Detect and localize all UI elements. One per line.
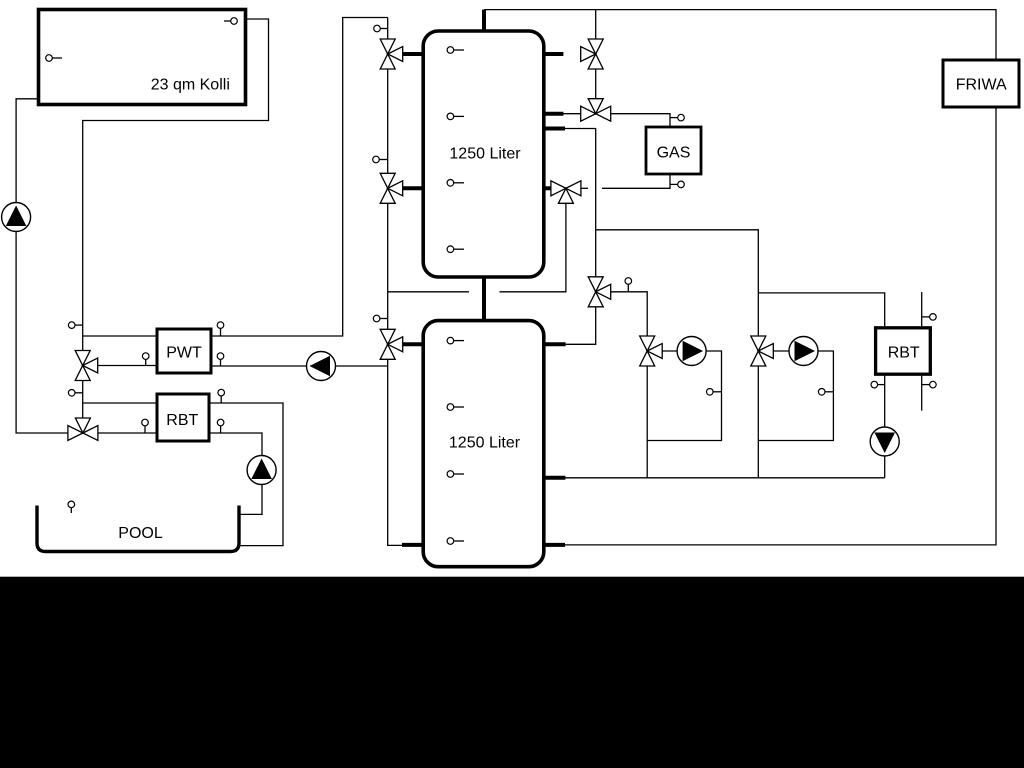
svg-text:RBT: RBT (166, 412, 198, 429)
svg-text:GAS: GAS (657, 145, 691, 162)
svg-text:POOL: POOL (118, 525, 163, 542)
svg-text:FRIWA: FRIWA (956, 76, 1007, 93)
svg-text:23 qm Kolli: 23 qm Kolli (151, 77, 230, 94)
svg-text:PWT: PWT (166, 345, 202, 362)
svg-text:1250 Liter: 1250 Liter (449, 434, 521, 451)
svg-text:1250 Liter: 1250 Liter (449, 145, 521, 162)
svg-text:RBT: RBT (888, 345, 920, 362)
